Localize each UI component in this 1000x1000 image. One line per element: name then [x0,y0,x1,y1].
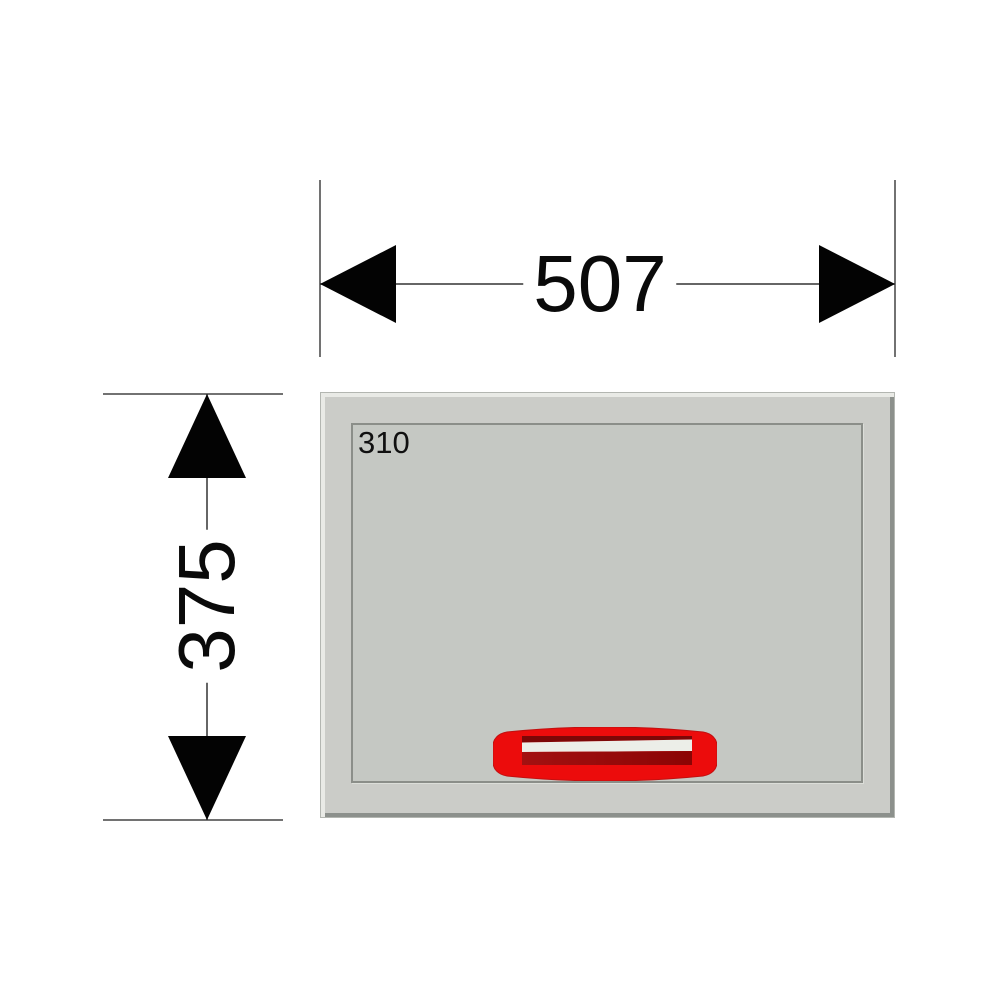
recessed-handle [493,727,717,781]
cabinet-front-panel: 310 [320,392,895,818]
handle-recess [522,736,692,765]
technical-drawing: 507 375 310 [0,0,1000,1000]
height-dimension-label: 375 [165,529,249,682]
arrowhead-down-icon [168,736,246,820]
arrowhead-left-icon [320,245,396,323]
width-dimension-label: 507 [523,242,676,326]
panel-inner-label: 310 [358,426,410,460]
arrowhead-up-icon [168,394,246,478]
handle-recess-inner-face [522,751,692,765]
arrowhead-right-icon [819,245,895,323]
